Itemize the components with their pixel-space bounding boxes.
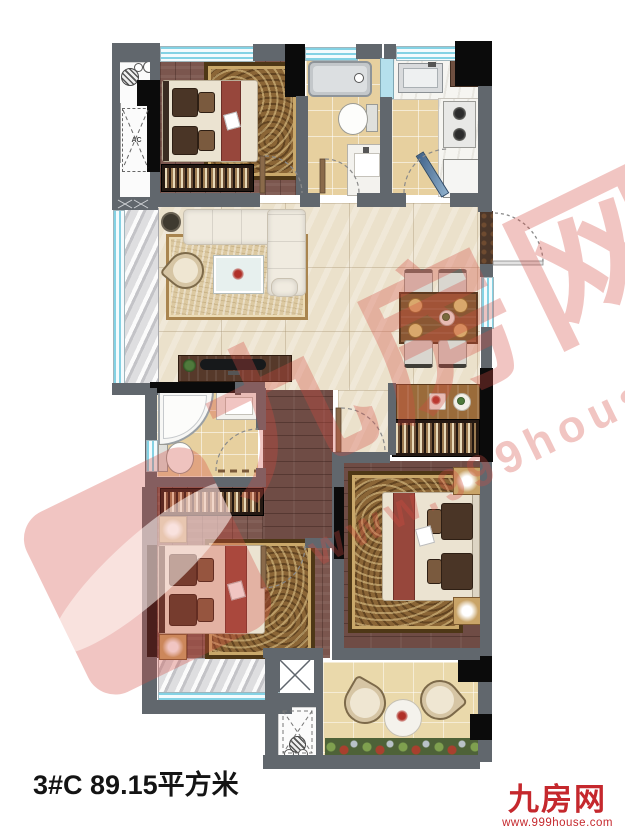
wall-segment — [300, 193, 320, 207]
wall-segment — [253, 44, 285, 61]
wall-segment — [470, 714, 492, 740]
bedroom2-window-sill — [158, 658, 280, 694]
wall-segment — [265, 655, 278, 767]
wall-segment — [147, 99, 160, 172]
wall-segment — [150, 382, 235, 393]
wall-segment — [263, 755, 480, 769]
floor-plan: AC — [0, 0, 625, 837]
wall-segment — [357, 193, 392, 207]
bedroom2-nightstand — [159, 634, 187, 660]
site-url: www.999house.com — [502, 817, 613, 829]
wall-segment — [392, 193, 406, 207]
wall-segment — [145, 477, 266, 487]
sideboard — [396, 384, 480, 420]
glass-partition — [380, 58, 394, 99]
dining-table — [399, 292, 478, 344]
wall-segment — [285, 44, 305, 97]
wall-segment — [296, 96, 308, 195]
entry-doormat — [480, 211, 493, 264]
balcony-plant — [396, 710, 408, 722]
plant-pot — [183, 359, 196, 372]
bedroom1-window — [160, 46, 255, 62]
wall-segment — [450, 193, 490, 207]
bedroom1-bed — [162, 80, 258, 162]
wall-segment — [384, 44, 396, 59]
stove — [443, 101, 476, 148]
dining-chair — [404, 340, 433, 368]
balcony-flowerbed — [325, 738, 478, 756]
wall-segment — [147, 545, 157, 657]
kitchen-sink — [398, 63, 443, 93]
sofa-ottoman — [271, 278, 298, 297]
bedroom2-wardrobe — [160, 488, 264, 516]
master-nightstand — [453, 467, 481, 495]
wall-segment — [316, 655, 323, 767]
wall-segment — [278, 693, 318, 707]
living-window — [113, 210, 125, 385]
wall-segment — [478, 682, 492, 714]
bathroom2-window — [146, 440, 158, 472]
unit-area-label: 3#C 89.15平方米 — [33, 763, 239, 802]
wall-segment — [481, 327, 492, 370]
wall-segment — [112, 43, 160, 62]
tv — [200, 359, 266, 370]
master-wardrobe — [392, 419, 480, 457]
duct-shaft — [278, 658, 316, 696]
wall-segment — [480, 462, 492, 660]
wall-segment — [256, 388, 266, 430]
utility-fixture — [134, 63, 143, 72]
bedroom2-nightstand — [159, 516, 187, 543]
wall-segment — [480, 264, 493, 277]
tv-stand — [228, 371, 240, 375]
wall-segment — [150, 193, 260, 207]
bathroom2-sink — [216, 391, 260, 420]
ac-label: AC — [131, 137, 141, 144]
wall-segment — [334, 487, 344, 559]
wall-segment — [478, 740, 492, 762]
site-logo-text: 九房网 — [502, 784, 613, 815]
wall-segment — [356, 44, 382, 59]
toilet2-bowl — [166, 442, 194, 474]
corridor-floor — [263, 390, 333, 540]
bathroom1-window — [305, 47, 358, 61]
dining-window — [481, 277, 494, 329]
hall-alcove-floor — [338, 390, 388, 454]
toilet1-bowl — [338, 103, 368, 135]
master-nightstand — [453, 597, 481, 625]
bedroom1-wardrobe — [161, 164, 254, 192]
wall-segment — [112, 62, 120, 197]
site-branding: 九房网 www.999house.com — [502, 784, 613, 829]
wall-segment — [455, 41, 492, 86]
kitchen-window — [396, 46, 457, 61]
wall-segment — [332, 648, 480, 660]
bedroom2-bed — [158, 545, 265, 634]
wall-segment — [305, 538, 333, 548]
dining-chair — [438, 340, 467, 368]
wall-segment — [332, 452, 390, 463]
side-table — [161, 212, 181, 232]
wall-segment — [480, 368, 493, 462]
wall-segment — [380, 97, 392, 195]
master-bed — [382, 492, 481, 601]
coffee-table — [214, 256, 263, 293]
wall-segment — [388, 383, 396, 455]
bathtub — [308, 61, 372, 97]
living-window-sill — [123, 208, 159, 386]
wall-segment — [256, 468, 266, 477]
